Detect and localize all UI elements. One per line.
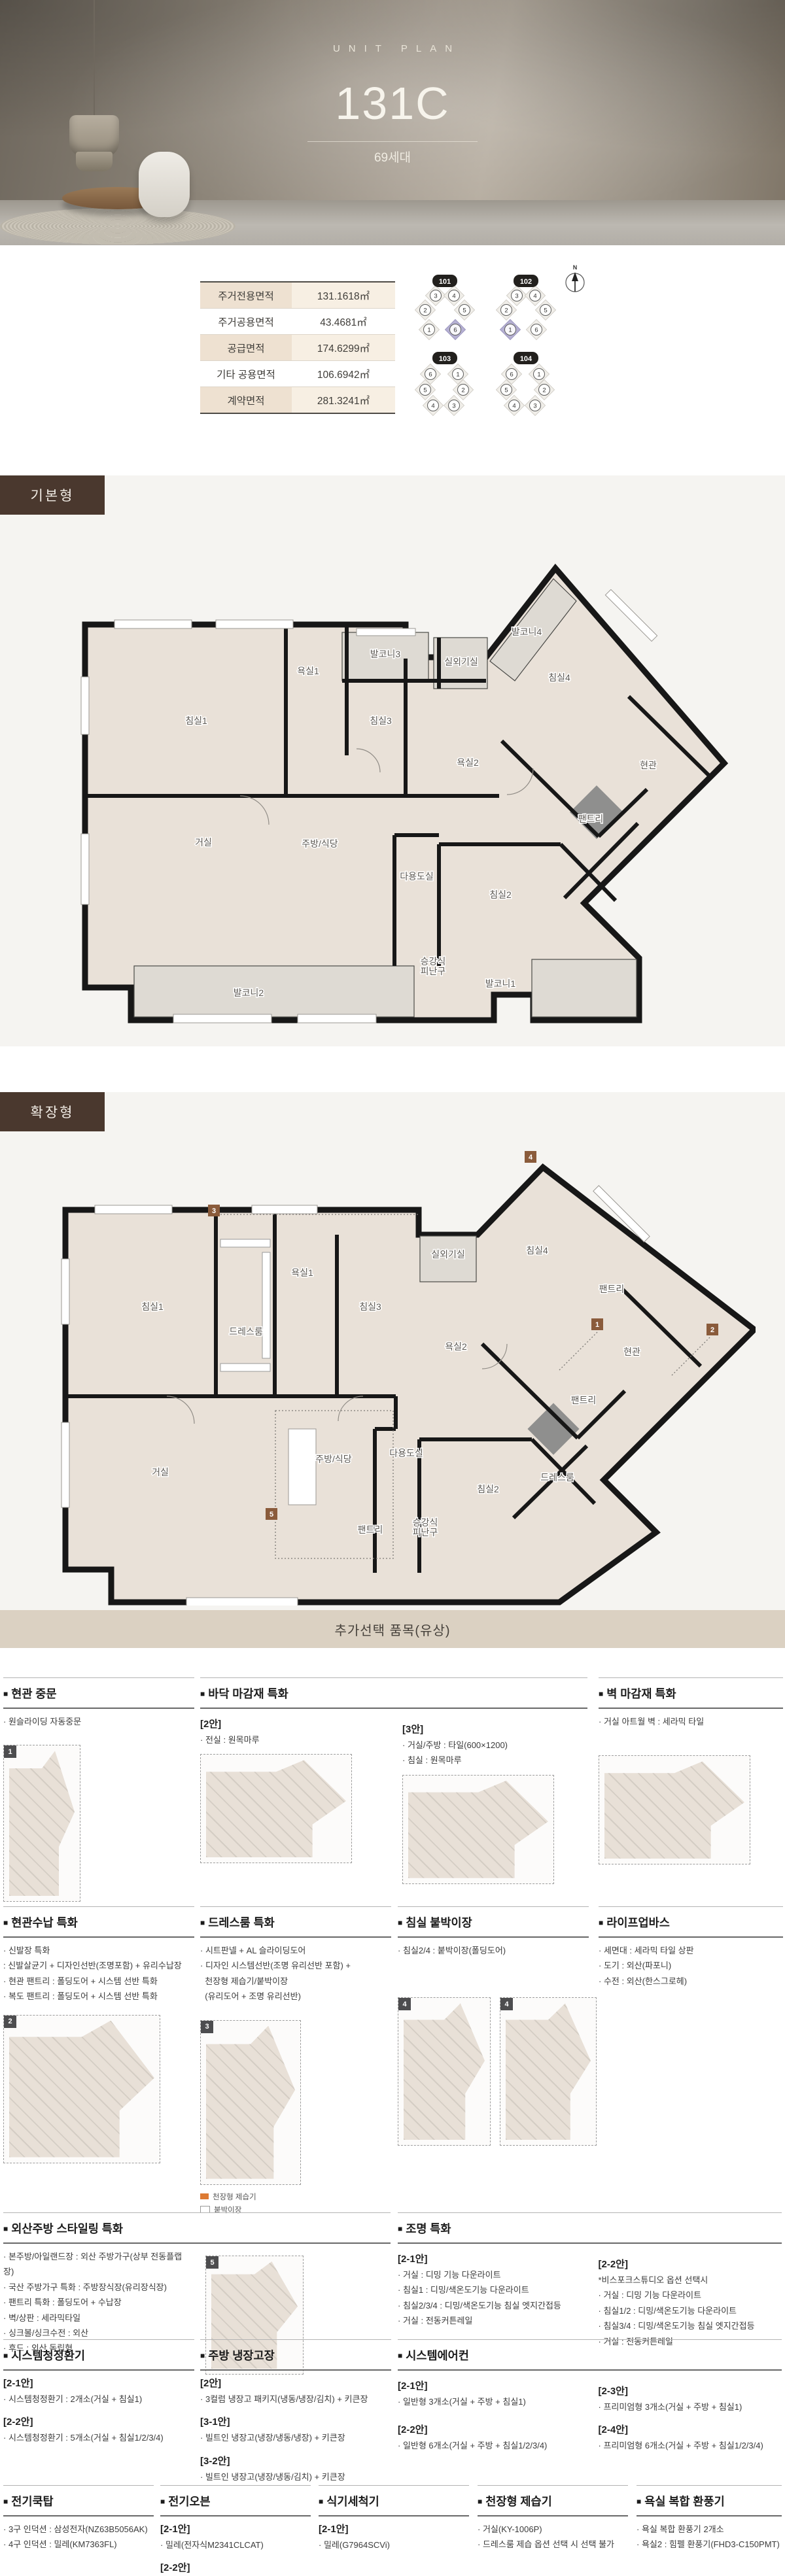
room-label: 거실 xyxy=(152,1467,169,1477)
unit-number: 6 xyxy=(534,327,538,334)
option-group-body: [2안]· 3컬럼 냉장고 패키지(냉동/냉장/김치) + 키큰장[3-1안]·… xyxy=(200,2376,391,2484)
option-group-body: [2-1안]· 밀레(전자식M2341CLCAT)[2-2안]· 밀레(P440… xyxy=(160,2522,311,2576)
paid-options-band: 추가선택 품목(유상) xyxy=(0,1610,785,1648)
option-line: · 후드 : 외산 독립형 xyxy=(3,2341,188,2356)
room-label: 다용도실 xyxy=(400,871,434,882)
option-block: [2-4안]· 프리미엄형 6개소(거실 + 주방 + 침실1/2/3/4) xyxy=(599,2414,782,2453)
option-group-title: ■욕실 복합 환풍기 xyxy=(637,2486,782,2516)
square-bullet-icon: ■ xyxy=(200,1918,205,1927)
room-label: 팬트리 xyxy=(358,1524,383,1535)
option-thumbnails xyxy=(599,1749,783,1864)
option-variant-tag: [2-1안] xyxy=(3,2376,194,2390)
option-marker-chip: 5 xyxy=(206,2256,218,2269)
unit-number: 1 xyxy=(427,327,430,334)
compass-icon: N xyxy=(566,264,584,292)
option-group: ■조명 특화[2-1안]· 거실 : 디밍 기능 다운라이트· 침실1 : 디밍… xyxy=(398,2212,782,2349)
key-plan: 342516101342516102615243103615243104N xyxy=(413,262,603,435)
option-group-title: ■현관수납 특화 xyxy=(3,1907,194,1938)
room-label: 주방/식당 xyxy=(315,1454,352,1464)
room-label: 다용도실 xyxy=(389,1448,423,1458)
option-plan-thumbnail: 3 xyxy=(200,2020,301,2185)
option-block: [2-2안]· 밀레(P4408M) xyxy=(160,2560,311,2576)
option-line: · 밀레(G7964SCVi) xyxy=(319,2537,469,2552)
option-marker-number: 3 xyxy=(212,1207,216,1215)
area-table-row: 공급면적174.6299㎡ xyxy=(200,335,395,361)
option-line: · 일반형 3개소(거실 + 주방 + 침실1) xyxy=(398,2394,582,2409)
square-bullet-icon: ■ xyxy=(3,2497,8,2506)
unit-number: 1 xyxy=(508,327,512,334)
room-label: 침실4 xyxy=(548,672,570,683)
option-group: ■현관 중문· 원슬라이딩 자동중문1 xyxy=(3,1677,194,1902)
option-marker-number: 4 xyxy=(529,1154,533,1161)
area-table-row: 기타 공용면적106.6942㎡ xyxy=(200,361,395,387)
unit-plan-page: UNIT PLAN 131C 69세대 주거전용면적131.1618㎡주거공용면… xyxy=(0,0,785,2576)
option-group-title-text: 전기오븐 xyxy=(168,2495,210,2508)
option-block: [2-1안]· 시스템청정환기 : 2개소(거실 + 침실1) xyxy=(3,2376,194,2407)
unit-number: 5 xyxy=(504,387,508,394)
option-group-title-text: 조명 특화 xyxy=(406,2222,451,2235)
key-plan-building: 342516101 xyxy=(415,275,474,340)
room-label: 거실 xyxy=(195,837,212,848)
option-line: *비스포크스튜디오 옵션 선택시 xyxy=(599,2273,782,2288)
unit-number: 4 xyxy=(431,403,434,410)
option-plan-thumbnail: 2 xyxy=(3,2015,160,2163)
option-group-title: ■현관 중문 xyxy=(3,1678,194,1709)
key-plan-building: 342516102 xyxy=(496,275,555,340)
square-bullet-icon: ■ xyxy=(319,2497,323,2506)
square-bullet-icon: ■ xyxy=(160,2497,165,2506)
option-line: · 4구 인덕션 : 밀레(KM7363FL) xyxy=(3,2537,154,2552)
option-variant-tag: [2-3안] xyxy=(599,2384,782,2397)
option-plan-thumbnail: 5 xyxy=(205,2256,304,2375)
option-line: · 본주방/아일랜드장 : 외산 주방가구(상부 전동플랩장) xyxy=(3,2249,188,2280)
room-label: 발코니4 xyxy=(512,627,542,637)
unit-number: 4 xyxy=(533,293,536,300)
option-group-title: ■조명 특화 xyxy=(398,2213,782,2244)
option-plan-thumbnail: 4 xyxy=(398,1997,491,2146)
hero-divider xyxy=(307,141,478,142)
room-label: 발코니2 xyxy=(234,987,264,998)
legend-row: 붙박이장 xyxy=(200,2205,391,2215)
option-group-body: [2안]· 전실 : 원목마루[3안]· 거실/주방 : 타일(600×1200… xyxy=(200,1714,587,1884)
option-line: · 시스템청정환기 : 2개소(거실 + 침실1) xyxy=(3,2392,194,2407)
option-group: ■라이프업바스· 세면대 : 세라믹 타일 상판· 도기 : 외산(파포니)· … xyxy=(599,1906,783,1989)
option-group-body: · 욕실 복합 환풍기 2개소· 욕실2 : 힘펠 환풍기(FHD3-C150P… xyxy=(637,2522,782,2552)
option-marker-number: 2 xyxy=(710,1326,714,1334)
option-line: · 빌트인 냉장고(냉장/냉동/김치) + 키큰장 xyxy=(200,2469,391,2484)
option-block: [2안]· 전실 : 원목마루 xyxy=(200,1714,385,1884)
option-marker-number: 1 xyxy=(595,1321,599,1329)
option-line: · 3컬럼 냉장고 패키지(냉동/냉장/김치) + 키큰장 xyxy=(200,2392,391,2407)
option-variant-tag: [3-2안] xyxy=(200,2454,391,2467)
option-block: [2-1안]· 밀레(G7964SCVi) xyxy=(319,2522,469,2552)
room-label: 침실3 xyxy=(359,1301,381,1312)
unit-number: 3 xyxy=(434,293,437,300)
option-group-title-text: 라이프업바스 xyxy=(606,1916,670,1929)
option-group: ■천장형 제습기· 거실(KY-1006P)· 드레스룸 제습 옵션 선택 시 … xyxy=(478,2485,628,2552)
option-block: [3안]· 거실/주방 : 타일(600×1200)· 침실 : 원목마루 xyxy=(402,1714,587,1884)
area-value: 106.6942㎡ xyxy=(292,361,395,387)
unit-number: 2 xyxy=(504,307,508,315)
option-block: · 신발장 특화: 신발살균기 + 디자인선반(조명포함) + 유리수납장· 현… xyxy=(3,1943,194,2004)
unit-number: 6 xyxy=(428,371,432,379)
option-variant-tag: [2-2안] xyxy=(398,2422,582,2436)
rug-image xyxy=(0,208,235,245)
option-variant-tag: [3안] xyxy=(402,1722,587,1736)
unit-number: 3 xyxy=(515,293,518,300)
option-group-title-text: 바닥 마감재 특화 xyxy=(208,1687,288,1700)
room-label: 팬트리 xyxy=(578,814,604,824)
option-line: · 국산 주방가구 특화 : 주방장식장(유리장식장) xyxy=(3,2280,188,2295)
option-group-title-text: 천장형 제습기 xyxy=(485,2495,551,2508)
option-group-body: · 원슬라이딩 자동중문 xyxy=(3,1714,194,1729)
square-bullet-icon: ■ xyxy=(398,2224,402,2233)
option-group: ■욕실 복합 환풍기· 욕실 복합 환풍기 2개소· 욕실2 : 힘펠 환풍기(… xyxy=(637,2485,782,2552)
option-group-title-text: 시스템청정환기 xyxy=(11,2349,85,2362)
option-group-body: · 본주방/아일랜드장 : 외산 주방가구(상부 전동플랩장)· 국산 주방가구… xyxy=(3,2249,391,2375)
area-value: 174.6299㎡ xyxy=(292,335,395,361)
option-group: ■시스템에어컨[2-1안]· 일반형 3개소(거실 + 주방 + 침실1)[2-… xyxy=(398,2339,782,2454)
option-block: · 거실(KY-1006P)· 드레스룸 제습 옵션 선택 시 선택 불가 xyxy=(478,2522,628,2552)
option-block: · 세면대 : 세라믹 타일 상판· 도기 : 외산(파포니)· 수전 : 외산… xyxy=(599,1943,783,1989)
option-group-body: [2-1안]· 일반형 3개소(거실 + 주방 + 침실1)[2-3안]· 프리… xyxy=(398,2376,782,2454)
unit-number: 5 xyxy=(544,307,547,315)
option-line: 천장형 제습기/붙박이장 xyxy=(200,1974,391,1989)
option-line: · 디자인 시스템선반(조명 유리선반 포함) + xyxy=(200,1958,391,1973)
tab-expanded-type: 확장형 xyxy=(0,1092,105,1131)
option-block: · 원슬라이딩 자동중문 xyxy=(3,1714,194,1729)
option-group-title-text: 침실 붙박이장 xyxy=(406,1916,472,1929)
key-plan-building: 615243104 xyxy=(496,352,554,416)
option-line: · 욕실 복합 환풍기 2개소 xyxy=(637,2522,782,2537)
room-label: 현관 xyxy=(623,1347,640,1357)
square-bullet-icon: ■ xyxy=(3,2224,8,2233)
option-group-title: ■바닥 마감재 특화 xyxy=(200,1678,587,1709)
option-group-body: · 침실2/4 : 붙박이장(폴딩도어) xyxy=(398,1943,589,1958)
unit-number: 6 xyxy=(510,371,513,379)
hero-banner: UNIT PLAN 131C 69세대 xyxy=(0,0,785,245)
option-plan-thumbnail xyxy=(402,1775,554,1884)
key-plan-building: 615243103 xyxy=(415,352,473,416)
unit-number: 1 xyxy=(456,371,459,379)
option-block: · 본주방/아일랜드장 : 외산 주방가구(상부 전동플랩장)· 국산 주방가구… xyxy=(3,2249,188,2375)
square-bullet-icon: ■ xyxy=(3,1689,8,1698)
option-variant-tag: [2-1안] xyxy=(160,2522,311,2535)
option-line: · 거실/주방 : 타일(600×1200) xyxy=(402,1738,587,1753)
option-block: [2-1안]· 밀레(전자식M2341CLCAT) xyxy=(160,2522,311,2552)
room-label: 침실2 xyxy=(489,889,512,900)
option-line: · 침실3/4 : 디밍/색온도기능 침실 엣지간접등 xyxy=(599,2318,782,2333)
option-group-title-text: 전기쿡탑 xyxy=(11,2495,53,2508)
option-line: · 시트판넬 + AL 슬라이딩도어 xyxy=(200,1943,391,1958)
option-variant-tag: [3-1안] xyxy=(200,2414,391,2428)
option-group: ■식기세척기[2-1안]· 밀레(G7964SCVi) xyxy=(319,2485,469,2552)
option-group: ■침실 붙박이장· 침실2/4 : 붙박이장(폴딩도어)44 xyxy=(398,1906,589,2146)
floor-plan-expanded: 침실1드레스룸욕실1침실3실외기실침실4팬트리현관욕실2팬트리거실주방/식당팬트… xyxy=(56,1148,756,1606)
option-block: [2-2안]· 시스템청정환기 : 5개소(거실 + 침실1/2/3/4) xyxy=(3,2414,194,2445)
area-table-row: 주거전용면적131.1618㎡ xyxy=(200,282,395,309)
room-label: 침실1 xyxy=(185,715,207,726)
option-group-body: · 3구 인덕션 : 삼성전자(NZ63B5056AK)· 4구 인덕션 : 밀… xyxy=(3,2522,154,2552)
option-group-title: ■외산주방 스타일링 특화 xyxy=(3,2213,391,2244)
mini-plan-graphic xyxy=(211,2261,298,2369)
option-marker-chip: 3 xyxy=(201,2021,213,2033)
option-line: · 원슬라이딩 자동중문 xyxy=(3,1714,194,1729)
option-line: · 수전 : 외산(한스그로헤) xyxy=(599,1974,783,1989)
room-label: 실외기실 xyxy=(444,657,478,667)
floor-plan-basic: 침실1욕실1발코니3실외기실침실3발코니4침실4욕실2현관팬트리거실주방/식당다… xyxy=(75,553,736,1037)
option-group: ■시스템청정환기[2-1안]· 시스템청정환기 : 2개소(거실 + 침실1)[… xyxy=(3,2339,194,2446)
mini-plan-graphic xyxy=(206,2026,295,2179)
option-variant-tag: [2안] xyxy=(200,1717,385,1730)
option-line: · 3구 인덕션 : 삼성전자(NZ63B5056AK) xyxy=(3,2522,154,2537)
option-marker-number: 5 xyxy=(270,1511,273,1519)
option-line: · 프리미엄형 3개소(거실 + 주방 + 침실1) xyxy=(599,2399,782,2414)
option-line: · 팬트리 특화 : 폴딩도어 + 수납장 xyxy=(3,2295,188,2310)
option-line: · 전실 : 원목마루 xyxy=(200,1732,385,1747)
option-plan-thumbnail: 4 xyxy=(500,1997,597,2146)
option-group-body: · 거실(KY-1006P)· 드레스룸 제습 옵션 선택 시 선택 불가 xyxy=(478,2522,628,2552)
area-value: 131.1618㎡ xyxy=(292,282,395,309)
room-label: 주방/식당 xyxy=(302,838,338,849)
unit-number: 2 xyxy=(461,387,464,394)
room-label: 침실4 xyxy=(526,1245,548,1256)
option-block: [2-1안]· 일반형 3개소(거실 + 주방 + 침실1) xyxy=(398,2376,582,2414)
option-group: ■주방 냉장고장[2안]· 3컬럼 냉장고 패키지(냉동/냉장/김치) + 키큰… xyxy=(200,2339,391,2484)
option-block: [2안]· 3컬럼 냉장고 패키지(냉동/냉장/김치) + 키큰장 xyxy=(200,2376,391,2407)
square-bullet-icon: ■ xyxy=(478,2497,482,2506)
tab-basic-type: 기본형 xyxy=(0,475,105,515)
building-number: 102 xyxy=(520,278,532,286)
option-block: [3-2안]· 빌트인 냉장고(냉장/냉동/김치) + 키큰장 xyxy=(200,2454,391,2484)
option-line: · 현관 팬트리 : 폴딩도어 + 시스템 선반 특화 xyxy=(3,1974,194,1989)
legend-row: 천장형 제습기 xyxy=(200,2191,391,2202)
square-bullet-icon: ■ xyxy=(637,2497,641,2506)
option-thumbnails: 2 xyxy=(3,2008,194,2163)
option-marker-chip: 1 xyxy=(4,1745,16,1758)
room-label: 욕실1 xyxy=(291,1267,313,1278)
square-bullet-icon: ■ xyxy=(200,1689,205,1698)
option-group-body: · 시트판넬 + AL 슬라이딩도어· 디자인 시스템선반(조명 유리선반 포함… xyxy=(200,1943,391,2004)
option-group: ■외산주방 스타일링 특화· 본주방/아일랜드장 : 외산 주방가구(상부 전동… xyxy=(3,2212,391,2375)
room-label: 침실1 xyxy=(141,1301,164,1312)
option-line: · 거실 : 전동커튼레일 xyxy=(599,2334,782,2349)
option-block: · 침실2/4 : 붙박이장(폴딩도어) xyxy=(398,1943,589,1958)
option-line: · 드레스룸 제습 옵션 선택 시 선택 불가 xyxy=(478,2537,628,2552)
option-line: · 복도 팬트리 : 폴딩도어 + 시스템 선반 특화 xyxy=(3,1989,194,2004)
option-variant-tag: [2-2안] xyxy=(599,2257,782,2271)
mini-plan-graphic xyxy=(604,1761,744,1859)
option-group-title-text: 현관 중문 xyxy=(11,1687,56,1700)
option-group: ■전기오븐[2-1안]· 밀레(전자식M2341CLCAT)[2-2안]· 밀레… xyxy=(160,2485,311,2576)
room-label: 팬트리 xyxy=(599,1284,625,1294)
option-block: [2-1안]· 거실 : 디밍 기능 다운라이트· 침실1 : 디밍/색온도기능… xyxy=(398,2249,582,2349)
option-line: · 침실1 : 디밍/색온도기능 다운라이트 xyxy=(398,2282,582,2297)
unit-number: 3 xyxy=(452,403,455,410)
thumbnail-legend: 천장형 제습기붙박이장 xyxy=(200,2191,391,2215)
area-label: 주거공용면적 xyxy=(200,309,292,335)
option-group: ■벽 마감재 특화· 거실 아트월 벽 : 세라믹 타일 xyxy=(599,1677,783,1864)
room-label: 욕실2 xyxy=(457,757,479,768)
option-group-title-text: 벽 마감재 특화 xyxy=(606,1687,676,1700)
unit-number: 5 xyxy=(423,387,427,394)
mini-plan-graphic xyxy=(506,2003,591,2140)
mini-plan-graphic xyxy=(206,1760,346,1857)
building-number: 101 xyxy=(439,278,451,286)
unit-number: 6 xyxy=(453,327,457,334)
option-marker-chip: 2 xyxy=(4,2016,16,2028)
option-group-title-text: 드레스룸 특화 xyxy=(208,1916,274,1929)
legend-label: 천장형 제습기 xyxy=(213,2191,256,2202)
option-group: ■드레스룸 특화· 시트판넬 + AL 슬라이딩도어· 디자인 시스템선반(조명… xyxy=(200,1906,391,2215)
area-value: 281.3241㎡ xyxy=(292,387,395,414)
area-table: 주거전용면적131.1618㎡주거공용면적43.4681㎡공급면적174.629… xyxy=(200,281,395,414)
option-line: · 빌트인 냉장고(냉장/냉동/냉장) + 키큰장 xyxy=(200,2430,391,2445)
option-group-title: ■라이프업바스 xyxy=(599,1907,783,1938)
option-line: · 거실(KY-1006P) xyxy=(478,2522,628,2537)
option-variant-tag: [2안] xyxy=(200,2376,391,2390)
option-line: · 밀레(전자식M2341CLCAT) xyxy=(160,2537,311,2552)
area-table-row: 계약면적281.3241㎡ xyxy=(200,387,395,414)
room-label: 발코니3 xyxy=(370,649,401,659)
unit-number: 4 xyxy=(452,293,455,300)
room-label: 승강식피난구 xyxy=(413,1517,438,1537)
room-label: 드레스룸 xyxy=(229,1326,263,1337)
option-block: 5 xyxy=(205,2249,391,2375)
room-label: 욕실2 xyxy=(445,1341,467,1352)
option-variant-tag: [2-2안] xyxy=(3,2414,194,2428)
option-plan-thumbnail xyxy=(200,1754,352,1863)
option-group-body: · 신발장 특화: 신발살균기 + 디자인선반(조명포함) + 유리수납장· 현… xyxy=(3,1943,194,2004)
option-line: · 도기 : 외산(파포니) xyxy=(599,1958,783,1973)
unit-number: 2 xyxy=(542,387,546,394)
room-label: 침실2 xyxy=(477,1484,499,1494)
option-group-body: [2-1안]· 밀레(G7964SCVi) xyxy=(319,2522,469,2552)
option-group-title: ■전기오븐 xyxy=(160,2486,311,2516)
mini-plan-graphic xyxy=(9,2021,154,2157)
unit-number: 4 xyxy=(512,403,515,410)
square-bullet-icon: ■ xyxy=(398,2351,402,2360)
area-table-body: 주거전용면적131.1618㎡주거공용면적43.4681㎡공급면적174.629… xyxy=(200,282,395,413)
option-line: · 신발장 특화 xyxy=(3,1943,194,1958)
option-group-title-text: 시스템에어컨 xyxy=(406,2349,469,2362)
option-group-title-text: 식기세척기 xyxy=(326,2495,379,2508)
room-label: 실외기실 xyxy=(431,1249,465,1260)
option-block: · 욕실 복합 환풍기 2개소· 욕실2 : 힘펠 환풍기(FHD3-C150P… xyxy=(637,2522,782,2552)
option-block: [3-1안]· 빌트인 냉장고(냉장/냉동/냉장) + 키큰장 xyxy=(200,2414,391,2445)
option-line: · 일반형 6개소(거실 + 주방 + 침실1/2/3/4) xyxy=(398,2438,582,2453)
option-variant-tag: [2-1안] xyxy=(319,2522,469,2535)
option-group: ■바닥 마감재 특화[2안]· 전실 : 원목마루[3안]· 거실/주방 : 타… xyxy=(200,1677,587,1884)
unit-number: 2 xyxy=(423,307,427,315)
area-label: 공급면적 xyxy=(200,335,292,361)
option-group-title-text: 주방 냉장고장 xyxy=(208,2349,274,2362)
option-marker-chip: 4 xyxy=(500,1998,513,2010)
building-number: 103 xyxy=(439,355,451,363)
option-group-title: ■식기세척기 xyxy=(319,2486,469,2516)
option-line: · 벽/상판 : 세라믹타일 xyxy=(3,2310,188,2326)
building-number: 104 xyxy=(520,355,532,363)
unit-number: 1 xyxy=(537,371,540,379)
option-thumbnails: 1 xyxy=(3,1738,194,1902)
room-label: 현관 xyxy=(640,760,657,770)
square-bullet-icon: ■ xyxy=(200,2351,205,2360)
hero-eyebrow: UNIT PLAN xyxy=(0,43,785,54)
option-group: ■전기쿡탑· 3구 인덕션 : 삼성전자(NZ63B5056AK)· 4구 인덕… xyxy=(3,2485,154,2552)
room-label: 팬트리 xyxy=(571,1395,597,1405)
room-label: 드레스룸 xyxy=(540,1472,574,1483)
option-block: · 거실 아트월 벽 : 세라믹 타일 xyxy=(599,1714,783,1729)
option-line: · 거실 : 전동커튼레일 xyxy=(398,2313,582,2328)
option-line: · 침실2/3/4 : 디밍/색온도기능 침실 엣지간접등 xyxy=(398,2298,582,2313)
option-plan-thumbnail: 1 xyxy=(3,1745,80,1902)
compass-north-label: N xyxy=(573,264,578,271)
household-count: 69세대 xyxy=(0,148,785,165)
room-label: 승강식피난구 xyxy=(421,956,446,976)
option-group-title: ■시스템청정환기 xyxy=(3,2340,194,2371)
option-group-title: ■드레스룸 특화 xyxy=(200,1907,391,1938)
option-plan-thumbnail xyxy=(599,1755,750,1864)
option-group-title: ■시스템에어컨 xyxy=(398,2340,782,2371)
option-group: ■현관수납 특화· 신발장 특화: 신발살균기 + 디자인선반(조명포함) + … xyxy=(3,1906,194,2163)
legend-swatch xyxy=(200,2206,210,2213)
legend-swatch xyxy=(200,2193,209,2199)
area-label: 기타 공용면적 xyxy=(200,361,292,387)
option-group-body: · 세면대 : 세라믹 타일 상판· 도기 : 외산(파포니)· 수전 : 외산… xyxy=(599,1943,783,1989)
option-line: · 침실 : 원목마루 xyxy=(402,1753,587,1768)
room-label: 욕실1 xyxy=(297,666,319,676)
option-line: · 침실1/2 : 디밍/색온도기능 다운라이트 xyxy=(599,2303,782,2318)
option-line: · 싱크볼/싱크수전 : 외산 xyxy=(3,2326,188,2341)
mini-plan-graphic xyxy=(408,1781,548,1878)
option-group-title-text: 욕실 복합 환풍기 xyxy=(644,2495,724,2508)
option-thumbnails: 44 xyxy=(398,1991,589,2146)
option-group-body: [2-1안]· 거실 : 디밍 기능 다운라이트· 침실1 : 디밍/색온도기능… xyxy=(398,2249,782,2349)
square-bullet-icon: ■ xyxy=(3,1918,8,1927)
option-line: · 프리미엄형 6개소(거실 + 주방 + 침실1/2/3/4) xyxy=(599,2438,782,2453)
option-variant-tag: [2-4안] xyxy=(599,2422,782,2436)
option-variant-tag: [2-2안] xyxy=(160,2560,311,2574)
option-line: (유리도어 + 조명 유리선반) xyxy=(200,1989,391,2004)
square-bullet-icon: ■ xyxy=(398,1918,402,1927)
option-block: [2-2안]· 일반형 6개소(거실 + 주방 + 침실1/2/3/4) xyxy=(398,2414,582,2453)
option-thumbnails: 3 xyxy=(200,2014,391,2185)
option-line: · 시스템청정환기 : 5개소(거실 + 침실1/2/3/4) xyxy=(3,2430,194,2445)
option-variant-tag: [2-1안] xyxy=(398,2379,582,2392)
area-label: 주거전용면적 xyxy=(200,282,292,309)
option-block: · 3구 인덕션 : 삼성전자(NZ63B5056AK)· 4구 인덕션 : 밀… xyxy=(3,2522,154,2552)
option-group-title: ■주방 냉장고장 xyxy=(200,2340,391,2371)
option-line: · 욕실2 : 힘펠 환풍기(FHD3-C150PMT) xyxy=(637,2537,782,2552)
unit-type-title: 131C xyxy=(0,77,785,129)
option-group-title: ■벽 마감재 특화 xyxy=(599,1678,783,1709)
option-group-title: ■천장형 제습기 xyxy=(478,2486,628,2516)
option-group-title-text: 현관수납 특화 xyxy=(11,1916,77,1929)
option-line: · 거실 : 디밍 기능 다운라이트 xyxy=(398,2267,582,2282)
area-table-row: 주거공용면적43.4681㎡ xyxy=(200,309,395,335)
square-bullet-icon: ■ xyxy=(599,1918,603,1927)
option-block: · 시트판넬 + AL 슬라이딩도어· 디자인 시스템선반(조명 유리선반 포함… xyxy=(200,1943,391,2004)
mini-plan-graphic xyxy=(9,1751,75,1896)
option-line: · 거실 : 디밍 기능 다운라이트 xyxy=(599,2288,782,2303)
option-line: · 거실 아트월 벽 : 세라믹 타일 xyxy=(599,1714,783,1729)
option-group-body: [2-1안]· 시스템청정환기 : 2개소(거실 + 침실1)[2-2안]· 시… xyxy=(3,2376,194,2446)
unit-number: 3 xyxy=(533,403,536,410)
square-bullet-icon: ■ xyxy=(599,1689,603,1698)
area-label: 계약면적 xyxy=(200,387,292,414)
option-group-title: ■침실 붙박이장 xyxy=(398,1907,589,1938)
option-variant-tag: [2-1안] xyxy=(398,2252,582,2265)
